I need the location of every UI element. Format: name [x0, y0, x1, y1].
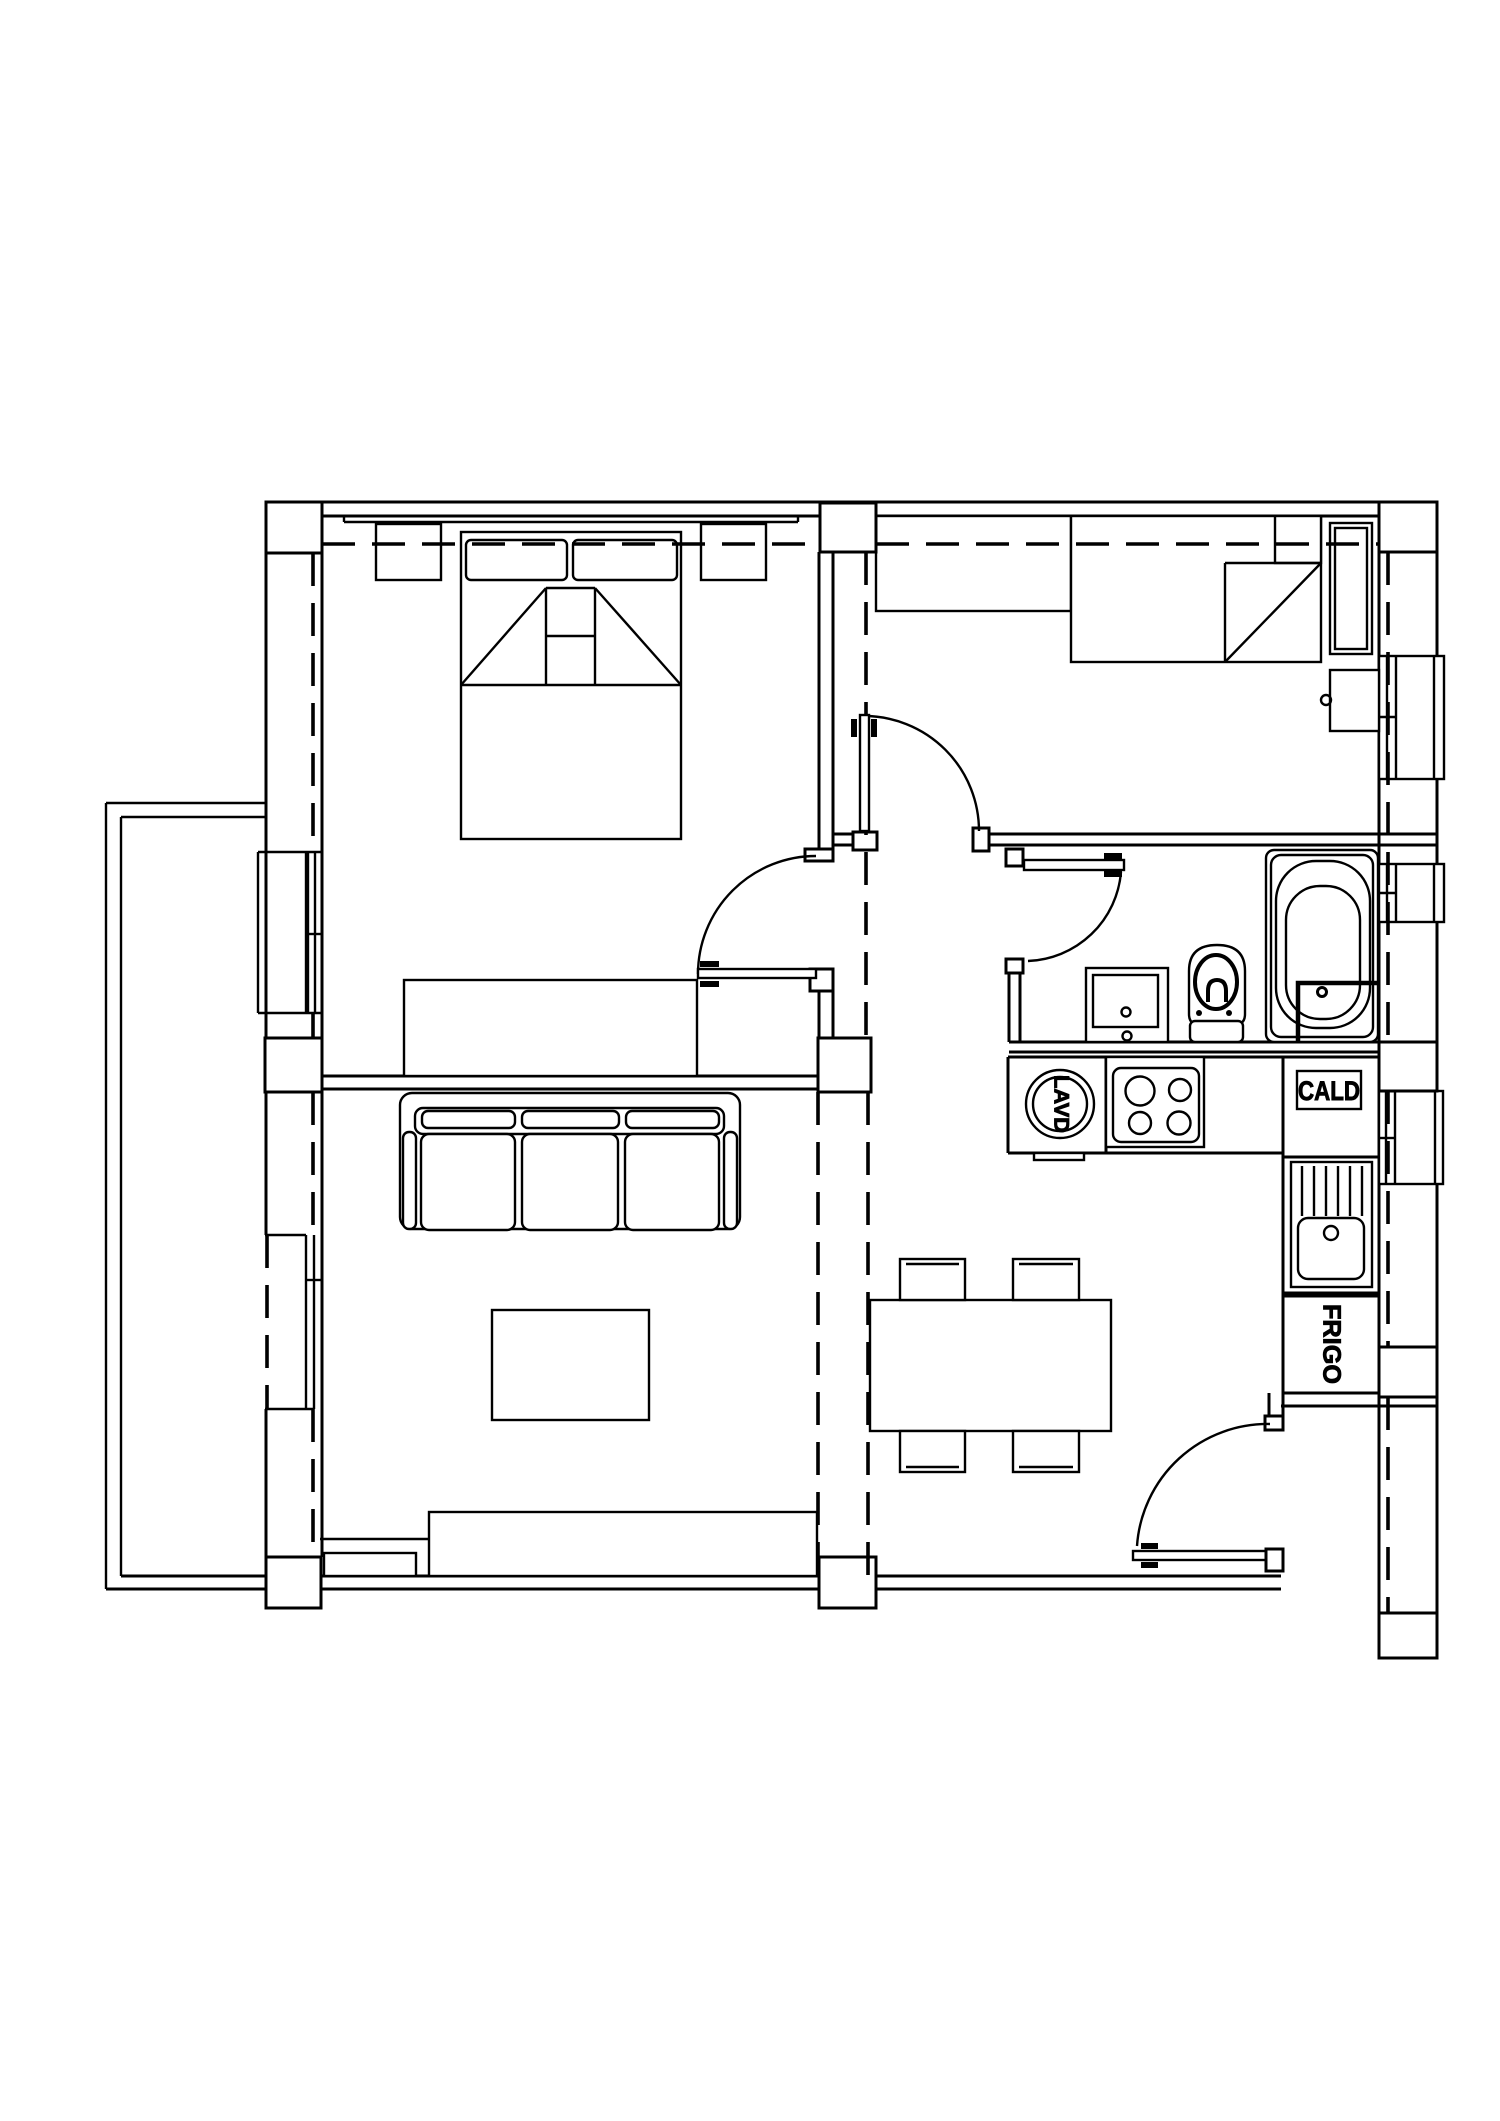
svg-text:CALD: CALD [1298, 1076, 1360, 1106]
svg-text:LAVD: LAVD [1049, 1075, 1072, 1133]
svg-text:FRIGO: FRIGO [1317, 1304, 1345, 1384]
